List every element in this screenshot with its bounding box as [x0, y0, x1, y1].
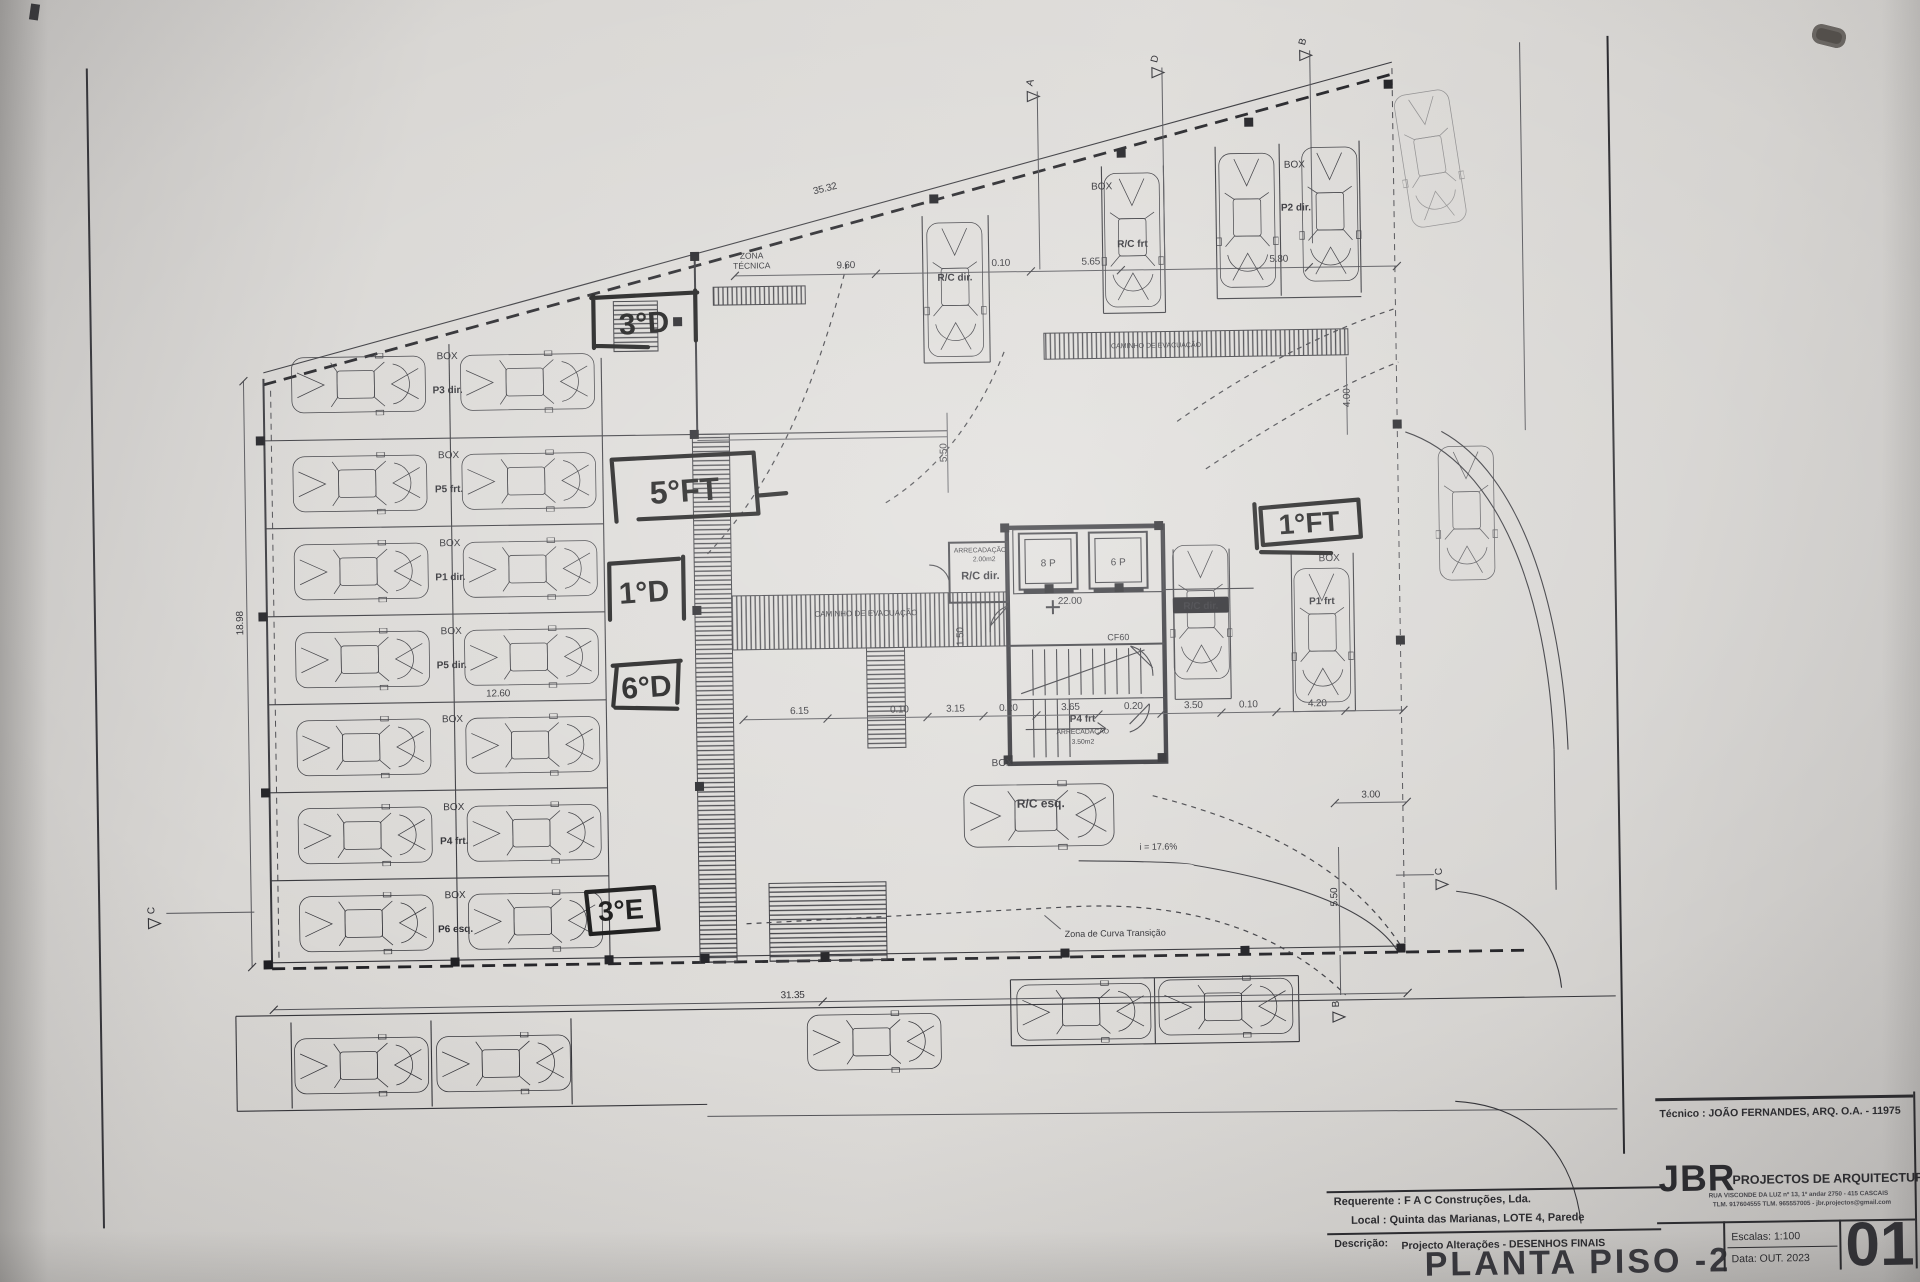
road-curve	[1554, 750, 1556, 890]
section-line	[1310, 50, 1313, 243]
drive-guide	[1153, 792, 1401, 950]
left-block-right-edge	[601, 358, 610, 964]
stall-line	[1279, 144, 1281, 296]
car-symbol	[1159, 975, 1294, 1039]
plan-label: 2.00m2	[973, 556, 996, 563]
handwritten-label: 5°FT	[649, 470, 721, 511]
dimension-text: 0.10	[890, 704, 909, 715]
box-label: BOX	[444, 890, 466, 901]
row-separator	[268, 700, 606, 705]
car-symbol	[468, 889, 603, 953]
stall-line	[1229, 549, 1231, 699]
car-symbol	[460, 350, 595, 414]
car-symbol	[436, 1031, 571, 1095]
car	[1435, 446, 1499, 581]
dimension-text: 0.20	[999, 703, 1018, 714]
car-symbol	[1389, 88, 1471, 230]
car-symbol	[923, 222, 987, 357]
dimension-text: 5.65	[1081, 256, 1100, 267]
plan-label: 6 P	[1111, 557, 1127, 568]
dimension-text: 0.20	[1124, 701, 1143, 712]
section-line	[1162, 68, 1165, 268]
stall-line	[1104, 312, 1166, 313]
plan-label: TÉCNICA	[733, 260, 771, 271]
car-symbol	[1298, 147, 1362, 282]
car	[293, 451, 428, 515]
plan-label: BOX	[1091, 181, 1113, 192]
section-marker-letter: B	[1331, 1000, 1342, 1007]
column	[1244, 118, 1253, 127]
plan-label: BOX	[992, 758, 1014, 769]
car	[462, 449, 597, 513]
column	[1117, 149, 1126, 158]
car	[299, 891, 434, 955]
dimension-text: 1.50	[955, 627, 966, 646]
stair-cutline	[1021, 650, 1146, 694]
stall-label: P4 frt.	[440, 836, 469, 847]
car-symbol	[293, 451, 428, 515]
plan-label: R/C dir.	[961, 570, 1000, 583]
car	[964, 780, 1115, 852]
car	[1215, 153, 1279, 288]
car	[460, 350, 595, 414]
stall-line	[1010, 980, 1011, 1046]
column	[1240, 946, 1249, 955]
section-marker-arrow	[1333, 1012, 1345, 1022]
column	[690, 430, 699, 439]
core-wall	[1009, 698, 1165, 700]
car-symbol	[297, 715, 432, 779]
car	[294, 539, 429, 603]
stair-tread	[1140, 648, 1141, 694]
car-symbol	[464, 625, 599, 689]
column	[695, 782, 704, 791]
column	[692, 606, 701, 615]
plan-label: R/C dir.	[937, 272, 972, 284]
elevator-8p-mark	[1045, 584, 1054, 593]
plan-label: P4 frt	[1070, 714, 1096, 725]
car-symbol	[964, 780, 1115, 852]
column	[1060, 948, 1069, 957]
plan-label: ARRECADAÇÃO	[954, 545, 1007, 555]
car	[1290, 568, 1354, 703]
car-symbol	[467, 801, 602, 865]
column	[1154, 521, 1163, 530]
car	[298, 803, 433, 867]
core-wall	[1008, 644, 1164, 646]
car	[923, 222, 987, 357]
handwritten-label: 3°E	[597, 893, 644, 927]
plan-label: ZONA	[740, 250, 764, 260]
car	[1298, 147, 1362, 282]
row-separator	[270, 788, 608, 793]
stall-line	[1217, 297, 1361, 299]
car-symbol	[1215, 153, 1279, 288]
road-curve	[1441, 430, 1568, 752]
column	[1000, 523, 1009, 532]
door-arc	[929, 565, 949, 585]
car	[1159, 975, 1294, 1039]
plan-label: P2 dir.	[1281, 202, 1311, 213]
stall-line	[1291, 554, 1293, 712]
dimension-text: 5.80	[1269, 254, 1288, 265]
car-symbol	[462, 449, 597, 513]
column	[264, 960, 273, 969]
stall-line	[1164, 588, 1254, 589]
handwritten-label: 3°D	[618, 306, 670, 342]
dimension-text: 3.65	[1061, 702, 1080, 713]
date-label: Data: OUT. 2023	[1732, 1252, 1810, 1265]
column	[673, 317, 682, 326]
boundary-left-dashed	[271, 391, 279, 963]
floor-plan-drawing: BOXP3 dir.BOXP5 frt.BOXP1 dir.BOXP5 dir.…	[0, 0, 1920, 1282]
car-symbol	[1435, 446, 1499, 581]
car	[468, 889, 603, 953]
car	[1017, 980, 1152, 1044]
stall-line	[291, 1023, 292, 1109]
car-symbol	[463, 537, 598, 601]
box-label: BOX	[438, 450, 460, 461]
car-symbol	[294, 1034, 429, 1098]
car-symbol	[298, 803, 433, 867]
column	[1393, 419, 1402, 428]
sheet-number: 01	[1845, 1208, 1915, 1280]
box-label: BOX	[441, 626, 463, 637]
leader-line	[1044, 915, 1060, 929]
car-symbol	[294, 539, 429, 603]
box-label: BOX	[439, 538, 461, 549]
dimension-text: 3.50	[1184, 700, 1203, 711]
road-curve	[1455, 1099, 1581, 1225]
dimension-text: 9.60	[836, 260, 855, 271]
car-symbol	[807, 1010, 942, 1074]
section-marker-arrow	[148, 918, 160, 928]
street-line	[707, 1103, 1617, 1122]
generated-drawing: BOXP3 dir.BOXP5 frt.BOXP1 dir.BOXP5 dir.…	[87, 32, 1619, 1245]
plan-label: i = 17.6%	[1139, 841, 1177, 852]
row-separator	[267, 612, 605, 617]
stair-tread	[1045, 699, 1046, 757]
dim-line	[243, 381, 252, 967]
column	[820, 952, 829, 961]
stair-tread	[1045, 649, 1046, 695]
plan-label: CAMINHO DE EVACUAÇÃO	[814, 608, 917, 619]
column	[690, 252, 699, 261]
car	[291, 352, 426, 416]
stall-line	[571, 1018, 572, 1104]
car-symbol	[1017, 980, 1152, 1044]
drive-guide	[882, 352, 1006, 504]
plan-label: Zona de Curva Transição	[1065, 928, 1166, 939]
plan-label: 8 P	[1041, 558, 1057, 569]
stall-line	[1215, 147, 1217, 299]
box-label: BOX	[442, 714, 464, 725]
dimension-text: 5.50	[1329, 887, 1340, 906]
dimension-text: 22.00	[1058, 596, 1083, 607]
car	[466, 713, 601, 777]
stall-line	[1359, 141, 1361, 293]
dimension-text: 0.10	[1239, 699, 1258, 710]
dimension-text: 4.20	[1308, 698, 1327, 709]
handwritten-label: 1°FT	[1278, 505, 1341, 540]
hatch-area	[732, 592, 1009, 650]
car	[294, 1034, 429, 1098]
ramp-curve	[1079, 859, 1194, 867]
column	[605, 955, 614, 964]
stall-divider	[449, 344, 458, 966]
dimension-text: 35.32	[812, 181, 839, 198]
column	[261, 788, 270, 797]
handwritten-label: 1°D	[618, 575, 670, 611]
plan-label: BOX	[1284, 159, 1306, 170]
drive-edge	[697, 437, 947, 441]
road-curve	[1405, 430, 1554, 752]
stall-label: P1 dir.	[435, 572, 465, 583]
stall-line	[922, 216, 924, 363]
stair-tread	[1081, 649, 1082, 695]
stall-label: P6 esq.	[438, 924, 473, 936]
stall-label: P3 dir.	[433, 385, 463, 396]
wall-top-block	[695, 257, 698, 434]
stair-tread	[1069, 649, 1070, 695]
plan-label: ARRECADAÇÃO	[1056, 726, 1109, 736]
dimension-text: 31.35	[781, 990, 806, 1001]
row-separator	[264, 436, 602, 441]
section-marker-letter: A	[1025, 78, 1037, 87]
boundary-top-thin	[259, 62, 1396, 373]
street-line	[236, 1016, 237, 1111]
car-symbol	[295, 627, 430, 691]
section-marker-letter: B	[1297, 37, 1309, 46]
boundary-right-dashed	[1392, 68, 1405, 952]
plan-label: R/C dir.	[1183, 601, 1218, 613]
street-edge	[1520, 42, 1526, 430]
section-line	[1396, 875, 1434, 876]
photographed-floor-plan: BOXP3 dir.BOXP5 frt.BOXP1 dir.BOXP5 dir.…	[0, 0, 1920, 1282]
column	[700, 954, 709, 963]
plan-label: 3.50m2	[1072, 739, 1095, 746]
box-label: BOX	[443, 802, 465, 813]
drive-edge	[697, 431, 947, 435]
dimension-text: 3.00	[1361, 789, 1380, 800]
plan-label: R/C frt	[1117, 239, 1148, 250]
drive-guide	[1176, 309, 1396, 421]
section-line	[1340, 955, 1341, 995]
sheet-frame-left	[87, 68, 104, 1228]
dim-line	[735, 266, 1397, 276]
car	[436, 1031, 571, 1095]
descricao-label: Descrição:	[1334, 1237, 1388, 1250]
plan-label: P1 frt	[1309, 596, 1335, 607]
plan-label: CF60	[1107, 632, 1129, 642]
section-marker-letter: C	[1434, 868, 1445, 875]
stair-tread	[1117, 648, 1118, 694]
section-marker-letter: C	[146, 907, 157, 914]
car-symbol	[1290, 568, 1354, 703]
section-line	[1037, 91, 1040, 269]
dimension-text: 18.98	[235, 611, 246, 636]
drawing-sheet: BOXP3 dir.BOXP5 frt.BOXP1 dir.BOXP5 dir.…	[0, 0, 1920, 1282]
stair-tread	[1105, 648, 1106, 694]
stair-tread	[1033, 649, 1034, 695]
stall-line	[1154, 978, 1155, 1044]
car	[295, 627, 430, 691]
car	[1389, 88, 1471, 230]
column	[1384, 80, 1393, 89]
firm-tagline: PROJECTOS DE ARQUITECTURA	[1732, 1170, 1920, 1187]
dimension-text: 4.00	[1342, 388, 1353, 407]
drive-guide	[1204, 362, 1400, 469]
dimension-text: 12.60	[486, 688, 511, 699]
dimension-text: 5.50	[938, 443, 949, 462]
dim-line	[1335, 802, 1407, 803]
elevator-6p-mark	[1115, 583, 1124, 592]
section-marker-arrow	[1436, 879, 1448, 889]
stall-line	[988, 215, 990, 362]
dimension-text: 0.10	[991, 258, 1010, 269]
dimension-text: 3.15	[946, 704, 965, 715]
column	[929, 194, 938, 203]
column	[451, 958, 460, 967]
stall-label: P5 frt.	[435, 484, 464, 495]
road-curve	[1456, 890, 1561, 990]
row-separator	[271, 876, 609, 881]
column	[1158, 753, 1167, 762]
hatch-area	[713, 286, 805, 305]
column	[258, 612, 267, 621]
stall-label: P5 dir.	[437, 660, 467, 671]
scale-label: Escalas: 1:100	[1731, 1230, 1800, 1243]
stair-tread	[1033, 699, 1034, 757]
section-marker-letter: D	[1149, 54, 1161, 64]
car	[807, 1010, 942, 1074]
car-symbol	[291, 352, 426, 416]
wall-line	[602, 434, 697, 435]
stall-line	[431, 1020, 432, 1106]
ramp-curve	[1194, 862, 1397, 953]
car-symbol	[466, 713, 601, 777]
section-line	[166, 912, 254, 913]
stair-tread	[1057, 649, 1058, 695]
stall-line	[924, 362, 990, 363]
box-label: BOX	[436, 351, 458, 362]
stair-tread	[1093, 649, 1094, 695]
car-symbol	[299, 891, 434, 955]
column	[256, 436, 265, 445]
column	[1396, 943, 1405, 952]
street-line	[237, 1104, 707, 1111]
column	[1396, 635, 1405, 644]
car	[297, 715, 432, 779]
plan-label: R/C esq.	[1017, 796, 1065, 811]
drawing-title: PLANTA PISO -2	[1424, 1241, 1731, 1282]
row-separator	[266, 524, 604, 529]
car	[463, 537, 598, 601]
handwritten-label: 6°D	[620, 670, 672, 706]
dimension-text: 6.15	[790, 706, 809, 717]
stall-line	[1353, 553, 1355, 711]
stall-line	[1298, 976, 1299, 1042]
hatch-area	[866, 647, 905, 748]
car	[464, 625, 599, 689]
car	[467, 801, 602, 865]
